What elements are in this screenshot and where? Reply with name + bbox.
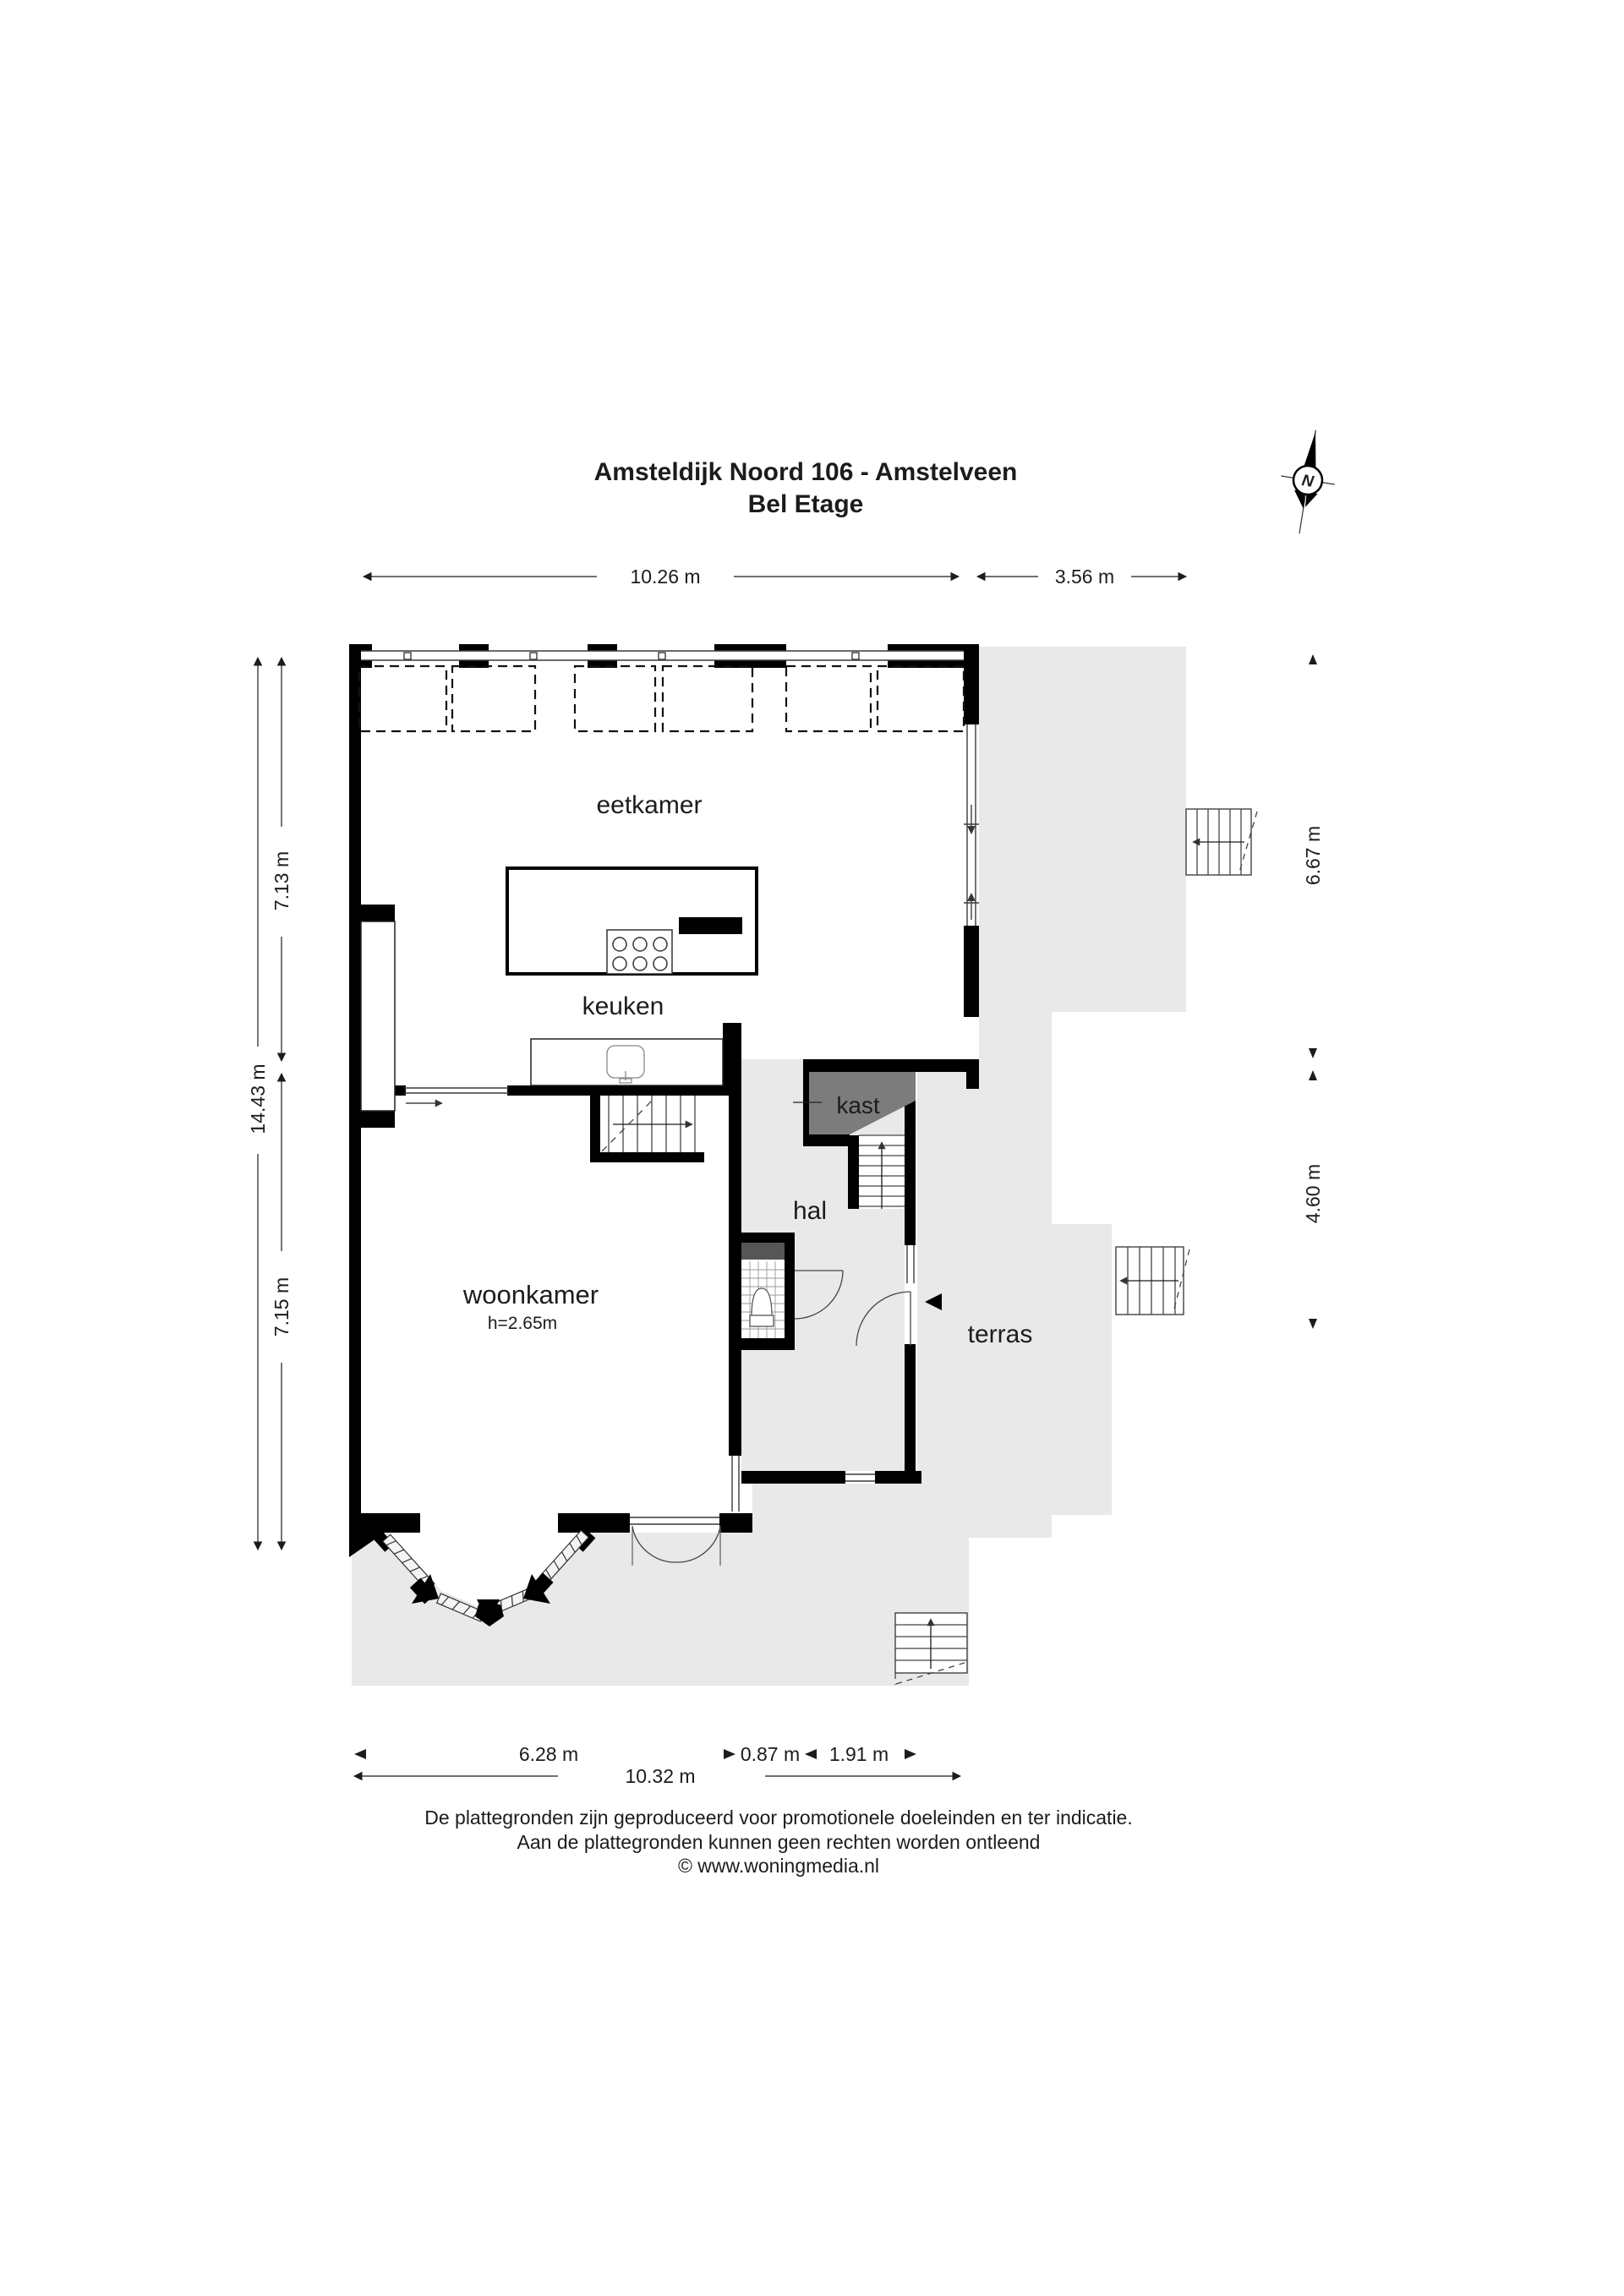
room-label-kast: kast: [836, 1092, 880, 1118]
room-height-woonkamer: h=2.65m: [488, 1314, 557, 1333]
room-label-woonkamer: woonkamer: [462, 1280, 599, 1309]
stairs-terrace-mid: [1116, 1247, 1189, 1315]
footer-line1: De plattegronden zijn geproduceerd voor …: [424, 1807, 1133, 1829]
dim-right-lower: 4.60 m: [1302, 1164, 1324, 1223]
room-label-eetkamer: eetkamer: [596, 791, 702, 819]
footer-line2: Aan de plattegronden kunnen geen rechten…: [517, 1831, 1041, 1853]
page-title: Amsteldijk Noord 106 - Amstelveen: [594, 458, 1018, 486]
hob-icon: [607, 930, 672, 974]
dim-right-upper: 6.67 m: [1302, 826, 1324, 885]
room-label-hal: hal: [793, 1197, 827, 1225]
kitchen-island: [507, 868, 757, 974]
page-subtitle: Bel Etage: [748, 490, 864, 518]
left-wall-niche: [361, 921, 395, 1111]
dim-top-main: 10.26 m: [630, 566, 700, 588]
dim-left-upper: 7.13 m: [271, 851, 293, 910]
room-label-terras: terras: [968, 1320, 1033, 1348]
wc-shelf: [741, 1243, 785, 1260]
island-hood-icon: [679, 917, 742, 934]
dim-top-right: 3.56 m: [1055, 566, 1114, 588]
wc: [741, 1243, 785, 1338]
footer-line3: © www.woningmedia.nl: [678, 1855, 879, 1877]
skylight-dashed-boxes: [359, 666, 964, 731]
dimension-ticks-right: [1309, 654, 1317, 1329]
kitchen-counter: [531, 1039, 723, 1085]
dim-bottom-mid: 0.87 m: [741, 1743, 800, 1765]
floorplan-page: eetkamer keuken kast hal woonkamer h=2.6…: [0, 0, 1624, 2296]
stairs-hal-up: [859, 1135, 905, 1209]
dim-bottom-total: 10.32 m: [625, 1765, 695, 1787]
dim-left-total: 14.43 m: [247, 1063, 269, 1134]
floorplan-svg: eetkamer keuken kast hal woonkamer h=2.6…: [0, 0, 1624, 2296]
stairs-keuken-down: [602, 1096, 695, 1152]
stairs-terrace-upper: [1186, 809, 1257, 875]
north-compass-icon: N: [1272, 426, 1342, 538]
room-label-keuken: keuken: [582, 992, 664, 1020]
dim-bottom-left: 6.28 m: [519, 1743, 578, 1765]
dim-bottom-right: 1.91 m: [829, 1743, 889, 1765]
dim-left-lower: 7.15 m: [271, 1277, 293, 1337]
